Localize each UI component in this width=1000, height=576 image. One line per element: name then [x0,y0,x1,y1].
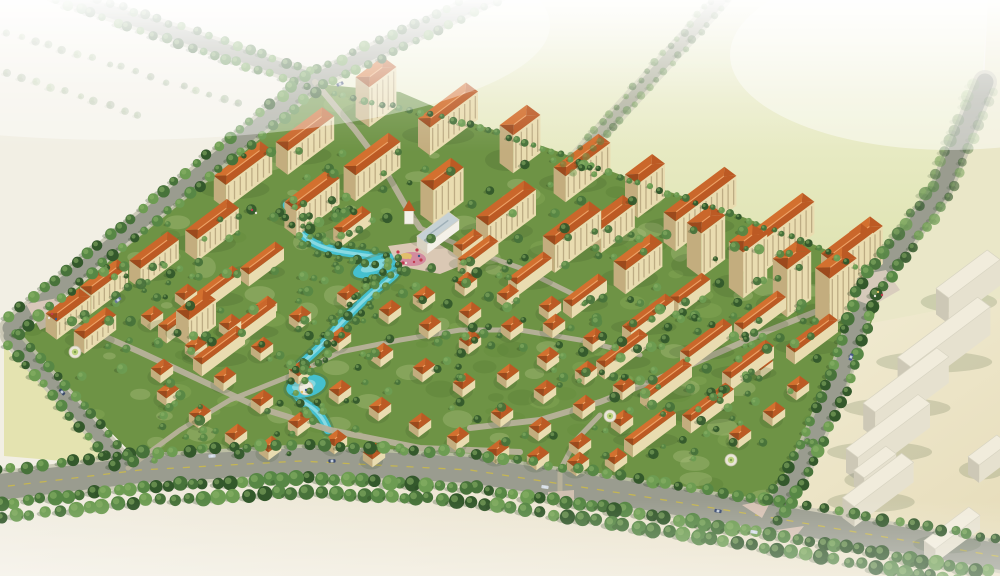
car [328,459,335,463]
rendering-canvas [0,0,1000,576]
masterplan-aerial-rendering [0,0,1000,576]
car [208,454,215,458]
